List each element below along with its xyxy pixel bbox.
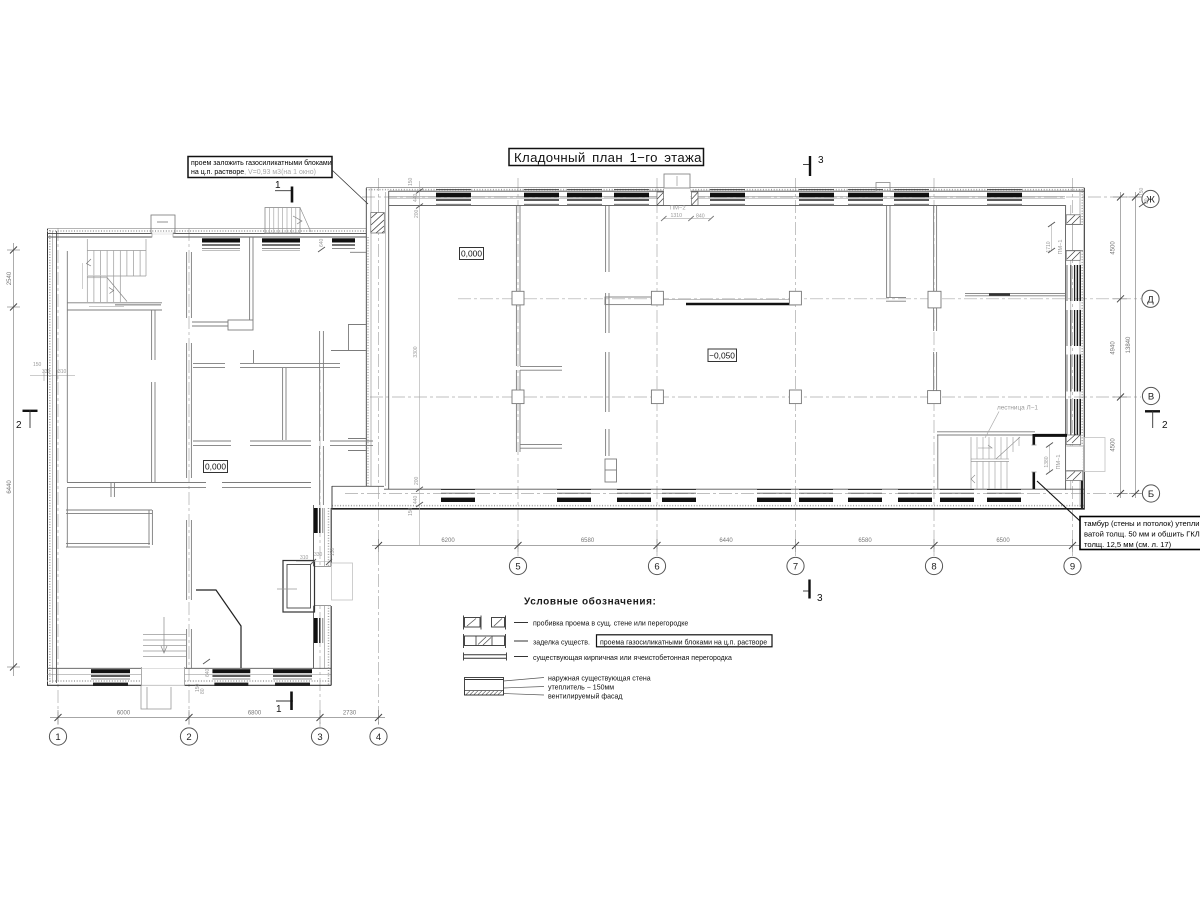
svg-text:утеплитель − 150мм: утеплитель − 150мм: [548, 685, 614, 692]
svg-text:200: 200: [414, 209, 420, 218]
svg-text:0,000: 0,000: [205, 462, 226, 472]
svg-text:0,000: 0,000: [461, 249, 482, 259]
svg-text:6500: 6500: [996, 538, 1010, 544]
svg-text:640: 640: [205, 668, 211, 677]
svg-text:4500: 4500: [1111, 241, 1117, 255]
svg-text:6200: 6200: [441, 538, 455, 544]
svg-text:на ц.п. растворе, V=0,93 м3(на: на ц.п. растворе, V=0,93 м3(на 1 окно): [191, 169, 316, 176]
svg-text:6580: 6580: [581, 538, 595, 544]
svg-text:440: 440: [413, 495, 419, 504]
svg-text:заделка существ.: заделка существ.: [533, 639, 590, 646]
svg-text:пробивка проема в сущ. стене: пробивка проема в сущ. стене или перегор…: [533, 620, 688, 628]
svg-text:13840: 13840: [1126, 336, 1132, 353]
svg-text:1: 1: [55, 732, 60, 743]
svg-text:4500: 4500: [1111, 438, 1117, 452]
svg-text:лестница Л−1: лестница Л−1: [997, 405, 1038, 412]
svg-text:проема газосиликатными блоками: проема газосиликатными блоками на ц.п. р…: [600, 638, 767, 646]
svg-text:6440: 6440: [719, 538, 733, 544]
svg-text:4940: 4940: [1111, 341, 1117, 355]
svg-text:1: 1: [276, 704, 282, 715]
svg-text:9: 9: [1070, 562, 1075, 573]
svg-text:существующая кирпичная или яче: существующая кирпичная или ячеистобетонн…: [533, 654, 732, 662]
svg-text:1380: 1380: [1044, 456, 1050, 467]
svg-text:150: 150: [408, 177, 414, 186]
svg-text:8: 8: [931, 562, 936, 573]
svg-text:3: 3: [317, 732, 322, 743]
svg-text:ПМ−1: ПМ−1: [1058, 239, 1064, 254]
svg-text:330: 330: [42, 369, 51, 375]
svg-text:1310: 1310: [671, 213, 683, 219]
svg-text:150: 150: [408, 507, 414, 516]
svg-text:проем заложить газосиликатными: проем заложить газосиликатными блоками: [191, 159, 332, 167]
svg-text:2: 2: [16, 420, 22, 431]
svg-text:6580: 6580: [858, 538, 872, 544]
svg-text:тамбур (стены и потолок) утепл: тамбур (стены и потолок) утепли: [1084, 519, 1200, 528]
svg-text:наружная существующая стена: наружная существующая стена: [548, 676, 651, 683]
svg-text:3: 3: [817, 593, 823, 604]
svg-text:Условные обозначения:: Условные обозначения:: [524, 596, 656, 608]
svg-text:ПМ−1: ПМ−1: [1056, 454, 1062, 469]
svg-text:6440: 6440: [7, 480, 13, 494]
svg-text:150: 150: [330, 547, 336, 556]
svg-text:640: 640: [319, 238, 325, 247]
svg-text:ПМ−2: ПМ−2: [670, 206, 686, 212]
svg-text:2: 2: [1162, 420, 1168, 431]
svg-text:440: 440: [413, 193, 419, 202]
svg-text:Кладочный план 1−го этажа: Кладочный план 1−го этажа: [514, 150, 702, 165]
svg-text:5: 5: [515, 562, 520, 573]
svg-text:4: 4: [376, 732, 381, 743]
svg-text:330: 330: [314, 552, 323, 558]
svg-text:Д: Д: [1147, 294, 1154, 305]
svg-text:толщ. 12,5 мм (см. л. 17): толщ. 12,5 мм (см. л. 17): [1084, 540, 1172, 549]
svg-text:2: 2: [186, 732, 191, 743]
svg-text:310: 310: [58, 369, 67, 375]
svg-text:6000: 6000: [117, 711, 131, 717]
svg-text:1: 1: [275, 180, 281, 191]
svg-text:7: 7: [793, 562, 798, 573]
svg-text:6800: 6800: [248, 711, 262, 717]
svg-text:150: 150: [1139, 187, 1145, 196]
svg-text:80: 80: [200, 688, 206, 694]
svg-text:3300: 3300: [413, 346, 419, 357]
svg-text:−0,050: −0,050: [709, 351, 735, 361]
svg-text:Б: Б: [1148, 489, 1154, 500]
svg-text:2730: 2730: [343, 711, 357, 717]
svg-text:вентилируемый фасад: вентилируемый фасад: [548, 693, 622, 701]
svg-text:3: 3: [818, 155, 824, 166]
svg-text:310: 310: [300, 555, 309, 561]
svg-text:200: 200: [414, 476, 420, 485]
svg-text:150: 150: [33, 362, 42, 368]
svg-text:В: В: [1148, 392, 1154, 403]
svg-text:ватой толщ. 50 мм и обшить ГКЛ: ватой толщ. 50 мм и обшить ГКЛ: [1084, 529, 1200, 538]
svg-text:6: 6: [654, 562, 659, 573]
svg-text:2540: 2540: [7, 271, 13, 285]
